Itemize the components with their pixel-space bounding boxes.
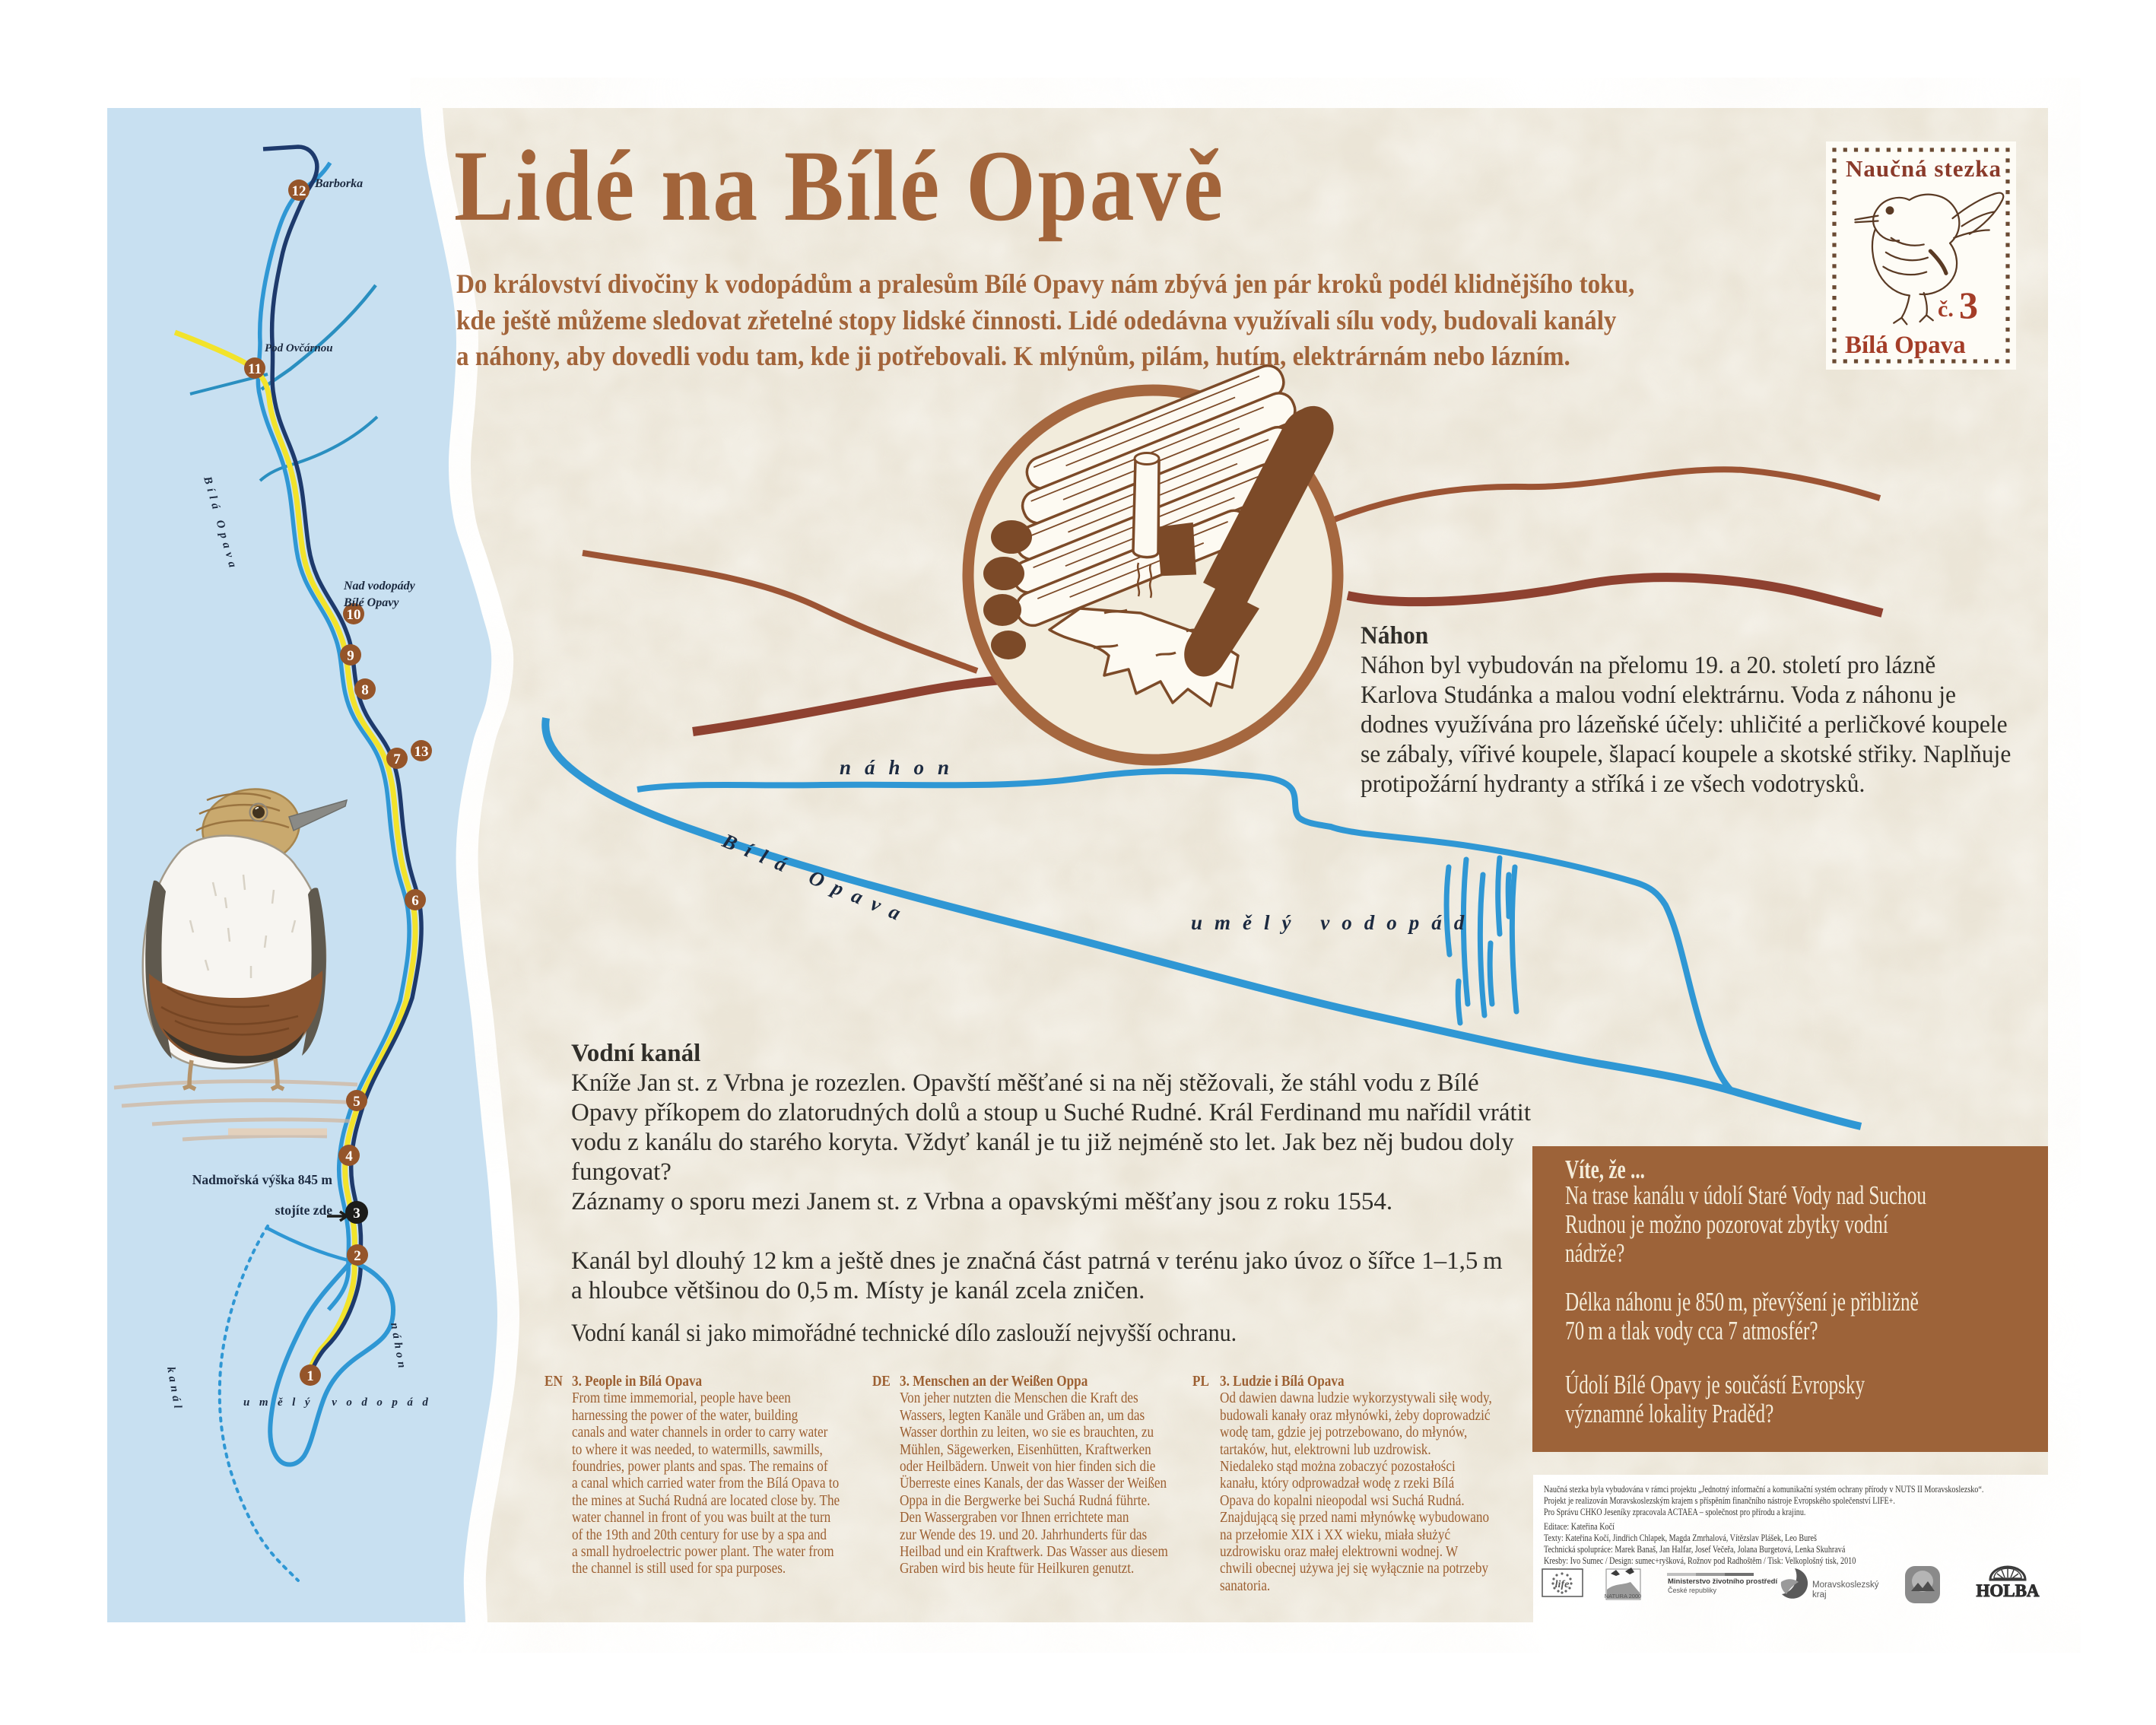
svg-text:HOLBA: HOLBA xyxy=(1976,1581,2039,1600)
svg-text:Naučná stezka: Naučná stezka xyxy=(1846,155,2002,182)
svg-text:7: 7 xyxy=(393,751,401,767)
svg-text:Bílá Opava: Bílá Opava xyxy=(1845,332,1966,359)
svg-text:4: 4 xyxy=(345,1148,353,1164)
svg-text:Barborka: Barborka xyxy=(314,177,363,190)
svg-text:12: 12 xyxy=(292,183,306,199)
svg-text:Ministerstvo životního prostře: Ministerstvo životního prostředí xyxy=(1668,1577,1777,1586)
svg-text:umělý vodopád: umělý vodopád xyxy=(243,1396,437,1409)
svg-text:Bílé Opavy: Bílé Opavy xyxy=(343,596,399,609)
svg-text:náhon: náhon xyxy=(840,756,963,779)
svg-text:kraj: kraj xyxy=(1812,1590,1827,1600)
svg-text:1: 1 xyxy=(306,1368,314,1384)
svg-text:9: 9 xyxy=(347,648,354,664)
svg-text:č.: č. xyxy=(1938,297,1954,322)
svg-text:8: 8 xyxy=(361,682,369,698)
svg-text:6: 6 xyxy=(411,893,419,909)
svg-text:13: 13 xyxy=(414,744,429,760)
svg-text:2: 2 xyxy=(354,1248,361,1264)
svg-text:3: 3 xyxy=(353,1206,360,1221)
svg-text:stojíte zde: stojíte zde xyxy=(275,1202,333,1218)
svg-text:NATURA 2000: NATURA 2000 xyxy=(1605,1593,1642,1600)
svg-text:3: 3 xyxy=(1959,284,1978,326)
svg-text:České republiky: České republiky xyxy=(1668,1587,1717,1594)
svg-text:Moravskoslezský: Moravskoslezský xyxy=(1812,1580,1879,1590)
svg-text:5: 5 xyxy=(353,1094,360,1110)
svg-text:Nad vodopády: Nad vodopády xyxy=(343,580,416,592)
svg-text:Pod Ovčárnou: Pod Ovčárnou xyxy=(265,342,333,354)
svg-text:life: life xyxy=(1555,1579,1570,1590)
svg-text:Nadmořská výška 845 m: Nadmořská výška 845 m xyxy=(192,1172,333,1187)
svg-text:umělý vodopád: umělý vodopád xyxy=(1191,911,1476,934)
svg-text:10: 10 xyxy=(347,607,361,623)
svg-text:11: 11 xyxy=(248,361,262,377)
